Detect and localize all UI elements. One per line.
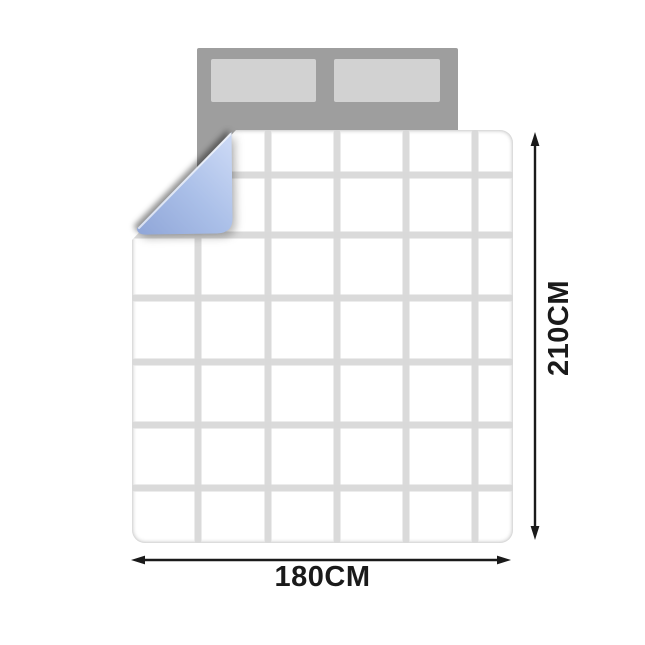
- height-label: 210CM: [543, 268, 575, 388]
- arrow-down-icon: [531, 526, 540, 540]
- pillow-left: [211, 59, 316, 102]
- width-label: 180CM: [132, 561, 513, 594]
- pillow-right: [334, 59, 440, 102]
- folded-corner: [132, 130, 244, 242]
- arrow-up-icon: [531, 132, 540, 146]
- bed-size-diagram: 180CM 210CM: [0, 0, 645, 645]
